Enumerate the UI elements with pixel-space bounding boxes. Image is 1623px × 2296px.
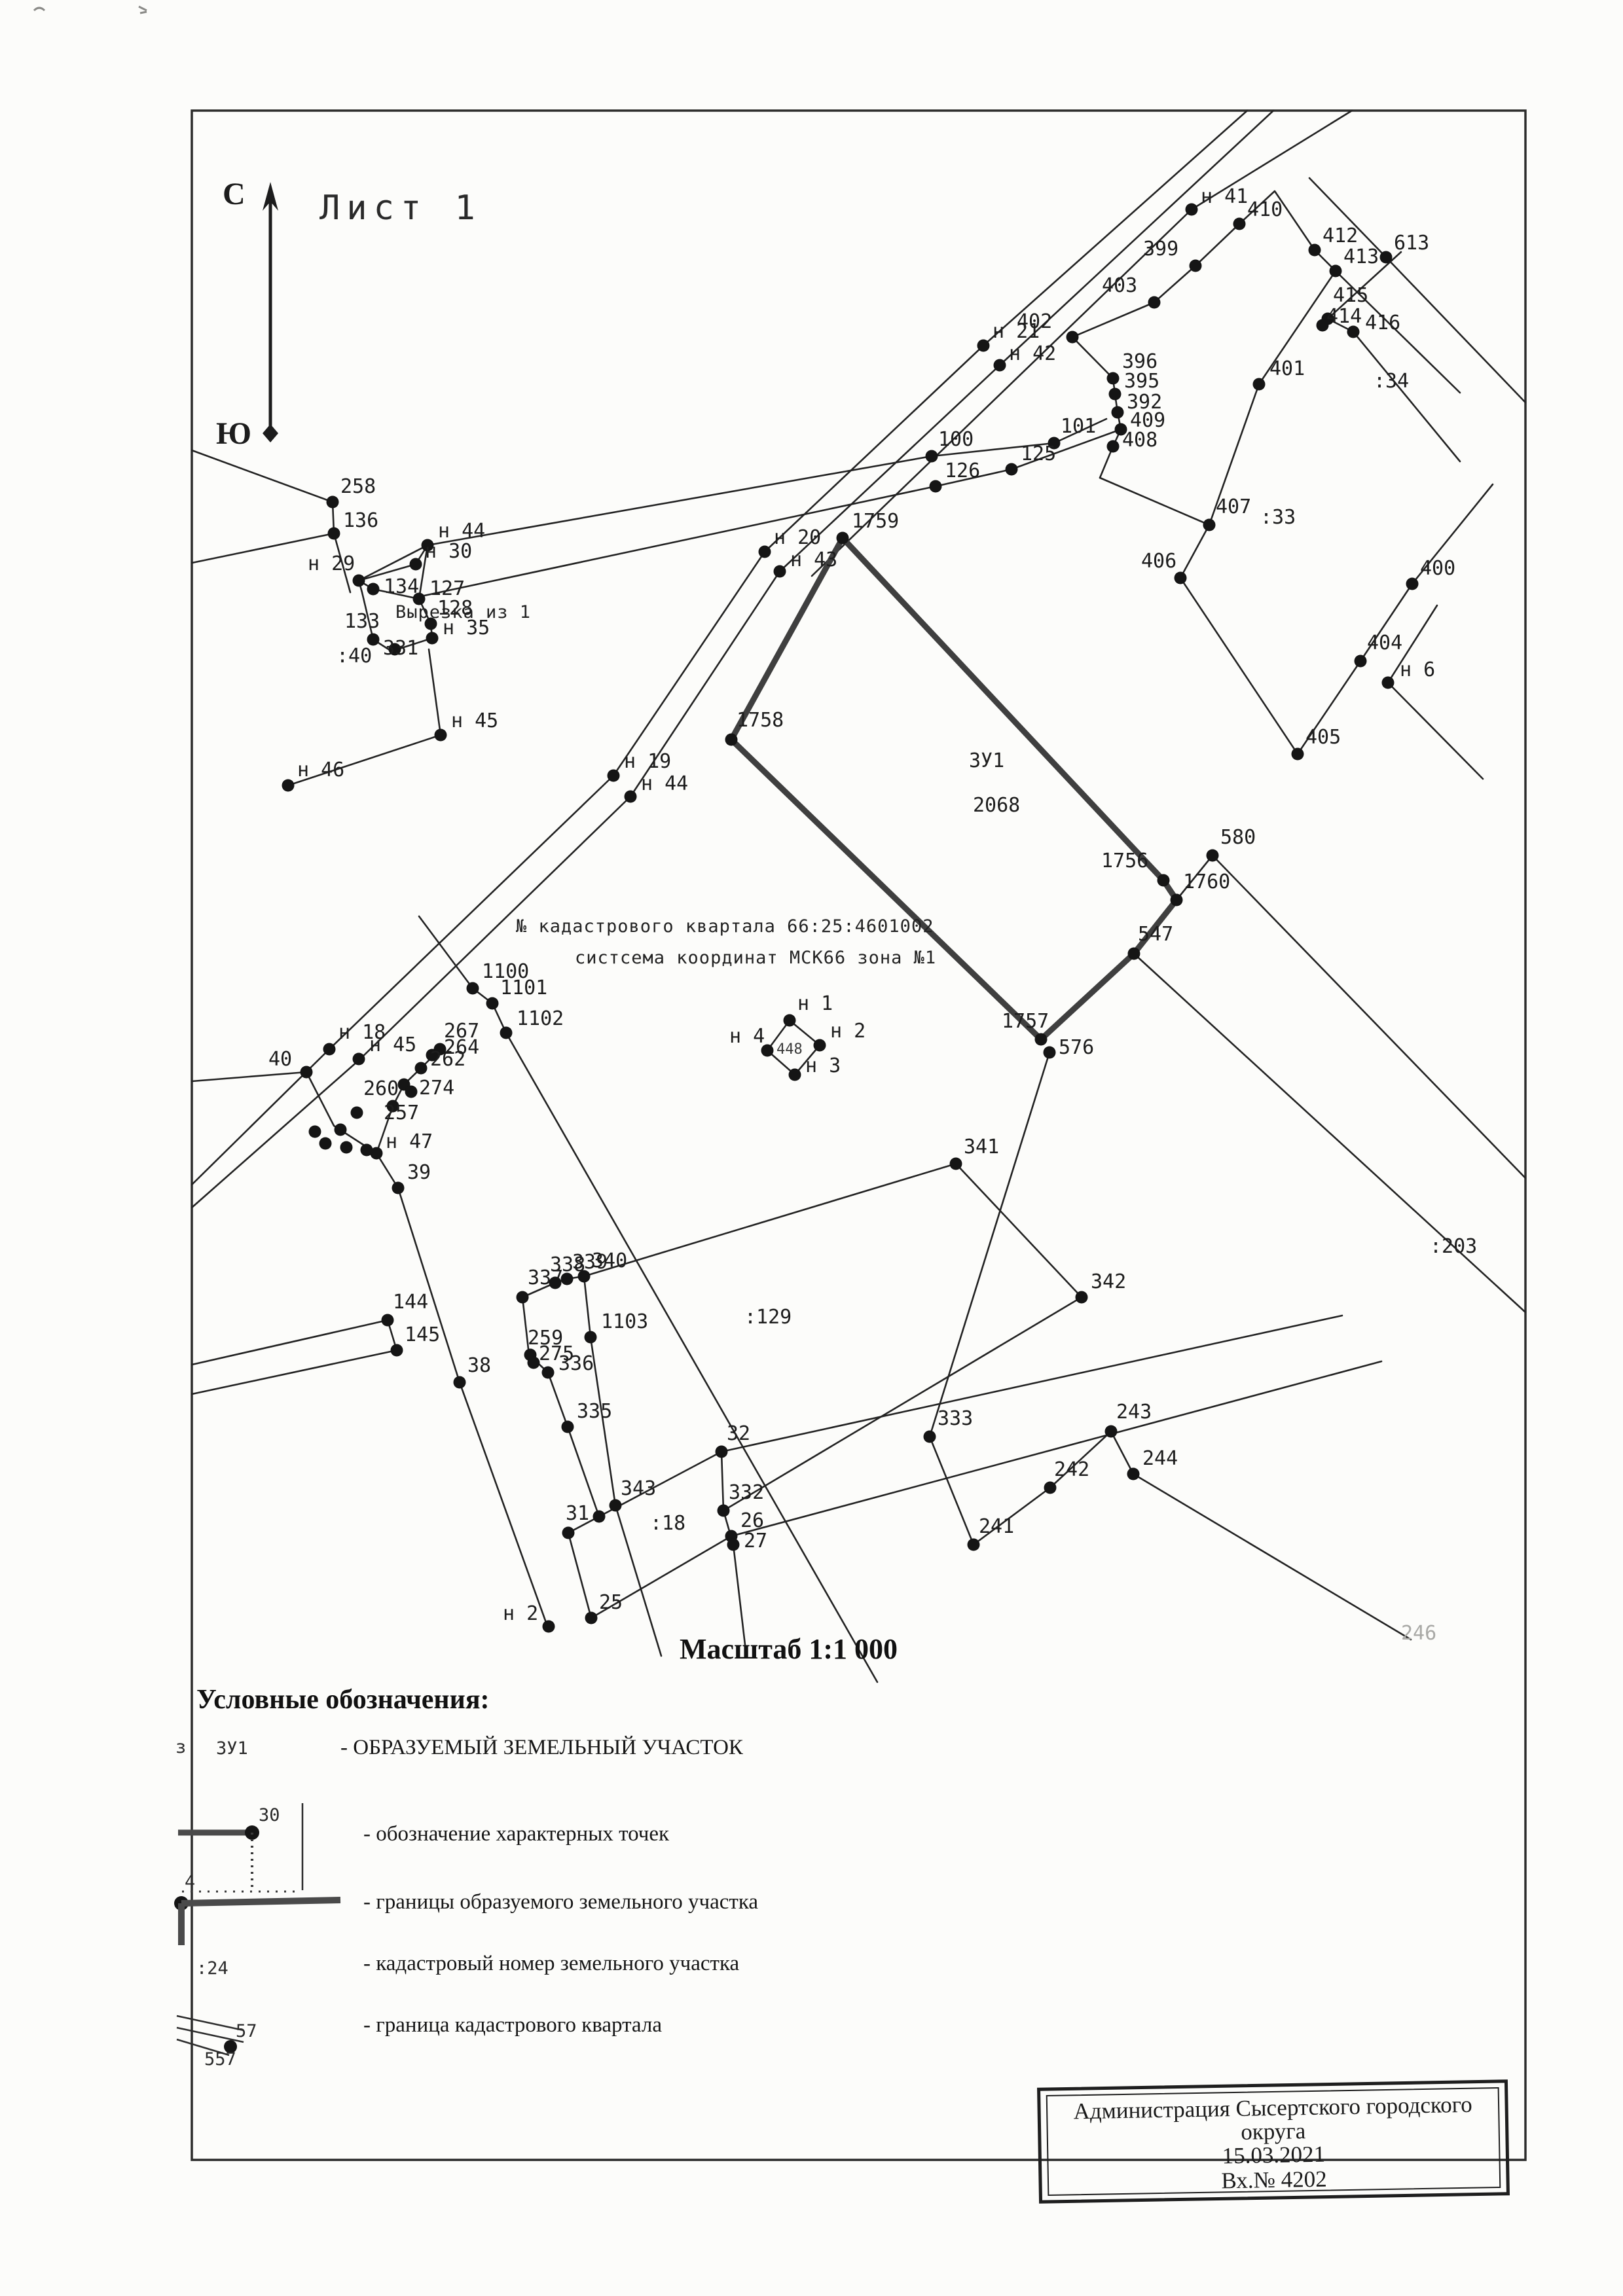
boundary-line bbox=[584, 1164, 1082, 1511]
survey-point-label: 1756 bbox=[1101, 850, 1148, 872]
boundary-line bbox=[568, 1533, 591, 1618]
survey-point-label: н 35 bbox=[443, 617, 490, 639]
survey-point-dot bbox=[1253, 378, 1266, 391]
survey-point-label: 395 bbox=[1124, 370, 1159, 393]
boundary-line bbox=[419, 916, 877, 1682]
legend-point-symbol: 30 bbox=[178, 1803, 302, 1892]
survey-point-label: 1102 bbox=[517, 1007, 564, 1030]
survey-point-label: 415 bbox=[1333, 284, 1368, 307]
survey-point-label: н 6 bbox=[1400, 658, 1435, 681]
legend-point-number: 30 bbox=[259, 1805, 280, 1825]
survey-point-dot bbox=[549, 1277, 562, 1289]
survey-point-dot bbox=[1207, 850, 1219, 862]
survey-point-label: 580 bbox=[1220, 826, 1256, 849]
survey-point-label: н 3 bbox=[805, 1054, 841, 1077]
survey-point-label: 1101 bbox=[500, 977, 547, 999]
survey-point-label: 333 bbox=[938, 1407, 973, 1430]
scan-artifact bbox=[139, 7, 147, 13]
map-text-label: 448 bbox=[776, 1041, 803, 1058]
survey-point-label: 260 bbox=[363, 1077, 399, 1100]
stamp-date: 15.03.2021 bbox=[1222, 2142, 1325, 2169]
survey-point-label: 125 bbox=[1021, 442, 1056, 465]
survey-point-label: 144 bbox=[393, 1291, 428, 1314]
survey-point-label: 576 bbox=[1059, 1036, 1094, 1059]
survey-point-label: 403 bbox=[1102, 274, 1137, 297]
survey-point-label: 25 bbox=[599, 1591, 623, 1614]
survey-point-label: 40 bbox=[268, 1048, 292, 1071]
survey-point-dot bbox=[361, 1144, 373, 1157]
survey-point-label: 613 bbox=[1394, 232, 1429, 255]
survey-point-dot bbox=[413, 593, 426, 605]
compass: С Ю bbox=[216, 177, 278, 451]
survey-point-label: 412 bbox=[1322, 224, 1358, 247]
legend-cadnum-text: - кадастровый номер земельного участка bbox=[363, 1952, 740, 1975]
boundary-line bbox=[424, 429, 1121, 596]
survey-point-dot bbox=[784, 1014, 796, 1027]
boundary-line bbox=[192, 1072, 306, 1081]
survey-point-label: 1103 bbox=[601, 1310, 648, 1333]
boundary-line bbox=[1100, 478, 1209, 525]
survey-point-dot bbox=[977, 340, 990, 352]
survey-point-dot bbox=[542, 1367, 555, 1379]
survey-point-dot bbox=[392, 1182, 405, 1194]
survey-point-label: н 47 bbox=[386, 1130, 433, 1153]
survey-point-dot bbox=[1148, 296, 1161, 309]
survey-point-dot bbox=[1076, 1291, 1088, 1304]
survey-point-label: 26 bbox=[740, 1509, 764, 1532]
survey-point-label: н 42 bbox=[1009, 342, 1056, 365]
survey-point-dot bbox=[1171, 894, 1183, 906]
survey-point-dot bbox=[435, 729, 447, 742]
survey-point-dot bbox=[994, 359, 1006, 372]
survey-point-dot bbox=[718, 1505, 730, 1517]
survey-point-dot bbox=[353, 575, 365, 587]
boundary-line bbox=[1213, 855, 1525, 1178]
survey-point-label: 27 bbox=[744, 1530, 767, 1552]
survey-point-label: н 45 bbox=[369, 1033, 416, 1056]
survey-point-dot bbox=[367, 634, 380, 646]
survey-point-label: 38 bbox=[467, 1354, 491, 1377]
survey-point-label: 332 bbox=[729, 1481, 764, 1504]
survey-point-dot bbox=[410, 558, 422, 571]
survey-point-label: 1760 bbox=[1183, 870, 1230, 893]
legend: Условные обозначения: з ЗУ1 - ОБРАЗУЕМЫЙ… bbox=[174, 1685, 758, 2070]
survey-point-label: 101 bbox=[1061, 415, 1096, 438]
map-text-label: 2068 bbox=[973, 794, 1020, 817]
boundary-line bbox=[591, 1361, 1381, 1618]
survey-point-dot bbox=[543, 1621, 555, 1633]
boundary-line bbox=[930, 1437, 974, 1545]
survey-point-dot bbox=[1109, 388, 1122, 401]
survey-point-label: н 2 bbox=[830, 1020, 866, 1043]
survey-point-label: 133 bbox=[344, 610, 380, 633]
survey-point-dot bbox=[1355, 655, 1367, 668]
survey-point-label: 331 bbox=[383, 637, 418, 660]
survey-point-dot bbox=[759, 546, 771, 558]
survey-point-label: н 43 bbox=[790, 548, 837, 571]
survey-point-label: 343 bbox=[621, 1477, 656, 1500]
survey-point-dot bbox=[930, 480, 942, 493]
survey-point-dot bbox=[1382, 677, 1395, 689]
survey-point-dot bbox=[1380, 251, 1393, 264]
survey-point-dot bbox=[1044, 1047, 1056, 1059]
survey-point-dot bbox=[1158, 874, 1170, 887]
map-text-label: :33 bbox=[1260, 506, 1296, 529]
survey-point-label: н 44 bbox=[641, 772, 688, 795]
survey-point-label: 39 bbox=[407, 1161, 431, 1184]
survey-point-label: 136 bbox=[343, 509, 378, 532]
survey-point-label: н 20 bbox=[774, 526, 821, 549]
survey-point-label: 408 bbox=[1122, 429, 1158, 452]
map-text-label: :34 bbox=[1374, 370, 1409, 393]
survey-point-dot bbox=[282, 780, 295, 792]
legend-cadnum-symbol: :24 bbox=[196, 1958, 228, 1979]
survey-point-dot bbox=[1112, 406, 1124, 419]
survey-point-label: н 44 bbox=[438, 520, 485, 543]
survey-point-dot bbox=[353, 1053, 365, 1066]
survey-point-dot bbox=[562, 1527, 575, 1539]
scale-label: Масштаб 1:1 000 bbox=[680, 1633, 898, 1665]
survey-point-label: 134 bbox=[384, 575, 419, 598]
map-text-label: :40 bbox=[337, 645, 372, 668]
legend-point-text: - обозначение характерных точек bbox=[363, 1822, 670, 1846]
survey-point-dot bbox=[1107, 440, 1120, 453]
survey-point-dot bbox=[323, 1043, 336, 1056]
survey-point-label: 342 bbox=[1091, 1270, 1126, 1293]
survey-point-label: н 1 bbox=[797, 992, 833, 1015]
survey-point-dot bbox=[561, 1273, 574, 1285]
survey-point-label: 31 bbox=[566, 1502, 589, 1525]
map-points: н 41410412413399403402613415414416401396… bbox=[268, 185, 1455, 1633]
admin-stamp: Администрация Сысертского городского окр… bbox=[1039, 2081, 1508, 2202]
boundary-line bbox=[1134, 954, 1525, 1312]
survey-point-dot bbox=[1105, 1426, 1118, 1438]
survey-point-dot bbox=[1107, 372, 1120, 385]
stamp-org-line2: округа bbox=[1241, 2118, 1306, 2145]
survey-point-dot bbox=[585, 1612, 598, 1624]
survey-point-dot bbox=[351, 1107, 363, 1119]
survey-point-label: 274 bbox=[419, 1077, 454, 1100]
survey-point-label: н 29 bbox=[308, 552, 355, 575]
survey-point-label: 413 bbox=[1343, 245, 1379, 268]
survey-point-dot bbox=[454, 1376, 466, 1389]
survey-point-dot bbox=[528, 1357, 540, 1369]
survey-point-label: 242 bbox=[1054, 1458, 1089, 1481]
survey-point-label: 404 bbox=[1367, 632, 1402, 655]
survey-point-dot bbox=[335, 1124, 347, 1136]
survey-point-label: 336 bbox=[558, 1352, 594, 1375]
survey-point-dot bbox=[1406, 578, 1419, 590]
survey-point-label: 405 bbox=[1305, 726, 1341, 749]
survey-point-label: 1757 bbox=[1002, 1010, 1049, 1033]
stamp-number: Вх.№ 4202 bbox=[1221, 2166, 1327, 2194]
survey-point-label: 410 bbox=[1247, 198, 1283, 221]
survey-point-label: 145 bbox=[405, 1323, 440, 1346]
survey-point-label: 32 bbox=[727, 1422, 750, 1445]
boundary-line bbox=[429, 649, 441, 735]
survey-point-label: 257 bbox=[384, 1102, 419, 1124]
compass-south-label: Ю bbox=[216, 416, 251, 451]
compass-north-label: С bbox=[223, 177, 246, 211]
survey-point-label: 1759 bbox=[852, 510, 899, 533]
survey-point-dot bbox=[1330, 265, 1342, 278]
survey-point-dot bbox=[367, 583, 380, 596]
survey-point-dot bbox=[837, 532, 849, 545]
survey-point-dot bbox=[926, 450, 938, 463]
survey-point-dot bbox=[725, 734, 738, 746]
boundary-line bbox=[398, 1188, 549, 1630]
survey-point-label: 406 bbox=[1141, 550, 1176, 573]
map-text-label: :129 bbox=[744, 1306, 792, 1329]
survey-point-dot bbox=[1006, 463, 1018, 476]
survey-point-dot bbox=[486, 997, 499, 1010]
map-text-label: ЗУ1 bbox=[969, 749, 1004, 772]
survey-point-label: 414 bbox=[1326, 305, 1362, 328]
survey-point-dot bbox=[405, 1086, 418, 1098]
survey-point-dot bbox=[924, 1431, 936, 1443]
scan-artifact bbox=[34, 8, 45, 10]
survey-point-dot bbox=[415, 1062, 428, 1075]
map-text-label: :203 bbox=[1430, 1235, 1477, 1258]
survey-point-label: 126 bbox=[945, 459, 980, 482]
south-diamond-icon bbox=[263, 424, 278, 442]
survey-point-label: 258 bbox=[340, 475, 376, 498]
survey-point-dot bbox=[309, 1126, 321, 1138]
survey-point-dot bbox=[301, 1066, 313, 1079]
survey-point-dot bbox=[1127, 1468, 1140, 1480]
survey-point-dot bbox=[950, 1158, 962, 1170]
legend-quarter-text: - граница кадастрового квартала bbox=[363, 2013, 662, 2037]
survey-point-dot bbox=[610, 1499, 622, 1512]
legend-quarter-number2: 557 bbox=[204, 2049, 236, 2070]
map-text-label: 246 bbox=[1401, 1622, 1436, 1645]
survey-point-dot bbox=[774, 565, 786, 578]
survey-point-label: 407 bbox=[1216, 495, 1251, 518]
survey-point-dot bbox=[1190, 260, 1202, 272]
boundary-line bbox=[192, 450, 333, 502]
quarter-number-annotation: № кадастрового квартала 66:25:4601002 bbox=[516, 916, 934, 937]
survey-point-label: 100 bbox=[938, 428, 974, 451]
survey-point-dot bbox=[593, 1511, 606, 1523]
survey-point-dot bbox=[426, 632, 439, 645]
survey-point-dot bbox=[585, 1331, 597, 1344]
survey-point-label: 416 bbox=[1365, 312, 1400, 334]
survey-point-dot bbox=[1347, 326, 1360, 338]
survey-point-dot bbox=[1203, 519, 1216, 531]
survey-point-dot bbox=[608, 770, 620, 782]
survey-point-dot bbox=[625, 791, 637, 803]
survey-point-dot bbox=[391, 1344, 403, 1357]
survey-point-label: 241 bbox=[979, 1515, 1014, 1538]
survey-point-label: 340 bbox=[592, 1249, 627, 1272]
survey-point-dot bbox=[1044, 1482, 1057, 1494]
legend-heading: Условные обозначения: bbox=[196, 1685, 490, 1715]
coord-system-annotation: систсема координат МСК66 зона №1 bbox=[575, 948, 936, 968]
survey-point-label: н 19 bbox=[624, 750, 671, 773]
survey-point-dot bbox=[968, 1539, 980, 1551]
survey-point-label: 401 bbox=[1269, 357, 1305, 380]
survey-point-dot bbox=[562, 1421, 574, 1433]
survey-point-label: н 21 bbox=[993, 320, 1040, 343]
survey-point-dot bbox=[1035, 1033, 1048, 1046]
survey-point-dot bbox=[727, 1539, 740, 1551]
map-text-label: :18 bbox=[650, 1512, 685, 1535]
survey-point-dot bbox=[328, 528, 340, 540]
cadastral-map-sheet: С Ю Лист 1 № кадастрового квартала 66:25… bbox=[0, 0, 1623, 2296]
boundary-line bbox=[1072, 337, 1121, 478]
legend-boundary-text: - границы образуемого земельного участка bbox=[363, 1890, 758, 1914]
survey-point-dot bbox=[319, 1138, 332, 1150]
survey-point-label: н 45 bbox=[451, 709, 498, 732]
survey-point-label: 341 bbox=[964, 1136, 999, 1158]
survey-point-dot bbox=[1292, 748, 1304, 761]
survey-point-label: н 30 bbox=[425, 540, 472, 563]
survey-point-dot bbox=[382, 1314, 394, 1327]
survey-point-dot bbox=[789, 1069, 801, 1081]
survey-point-dot bbox=[814, 1039, 826, 1052]
survey-point-label: 400 bbox=[1420, 557, 1455, 580]
boundary-line bbox=[1180, 271, 1336, 754]
legend-boundary-symbol: 4 bbox=[174, 1872, 340, 1945]
survey-point-dot bbox=[1067, 331, 1079, 344]
legend-parcel-symbol: ЗУ1 bbox=[216, 1738, 248, 1759]
survey-point-label: 547 bbox=[1138, 923, 1173, 946]
survey-point-dot bbox=[327, 496, 339, 509]
survey-point-dot bbox=[500, 1027, 513, 1039]
map-boundary-lines bbox=[192, 111, 1525, 1682]
survey-point-dot bbox=[1175, 572, 1187, 584]
survey-point-dot bbox=[1233, 218, 1246, 230]
survey-point-dot bbox=[340, 1141, 353, 1154]
survey-point-label: 1758 bbox=[737, 709, 784, 732]
survey-point-dot bbox=[425, 618, 437, 630]
survey-point-label: 335 bbox=[577, 1400, 612, 1423]
survey-point-dot bbox=[517, 1291, 529, 1304]
survey-point-dot bbox=[1186, 204, 1198, 216]
legend-quarter-symbol: 57 557 bbox=[177, 2016, 257, 2070]
legend-parcel-text: - ОБРАЗУЕМЫЙ ЗЕМЕЛЬНЫЙ УЧАСТОК bbox=[340, 1735, 744, 1759]
survey-point-label: 262 bbox=[430, 1048, 465, 1071]
survey-point-dot bbox=[716, 1446, 728, 1458]
survey-point-dot bbox=[578, 1270, 591, 1283]
map-parcel-labels: :33:34:129:18:203246:40448ЗУ12068 bbox=[337, 370, 1477, 1645]
legend-parcel-prefix: з bbox=[175, 1737, 186, 1757]
survey-point-label: н 4 bbox=[729, 1025, 765, 1048]
legend-boundary-number: 4 bbox=[185, 1872, 195, 1892]
survey-point-label: н 2 bbox=[503, 1602, 538, 1625]
boundary-line bbox=[1298, 484, 1493, 754]
survey-point-dot bbox=[467, 982, 479, 995]
sheet-title: Лист 1 bbox=[319, 188, 482, 228]
survey-point-label: н 46 bbox=[297, 759, 344, 781]
survey-point-dot bbox=[1309, 244, 1321, 257]
legend-quarter-number: 57 bbox=[236, 2021, 257, 2041]
survey-point-label: 244 bbox=[1142, 1447, 1178, 1470]
survey-point-label: 243 bbox=[1116, 1401, 1152, 1424]
survey-point-label: 399 bbox=[1143, 238, 1178, 260]
survey-point-dot bbox=[1128, 948, 1140, 960]
survey-point-label: н 41 bbox=[1201, 185, 1248, 208]
